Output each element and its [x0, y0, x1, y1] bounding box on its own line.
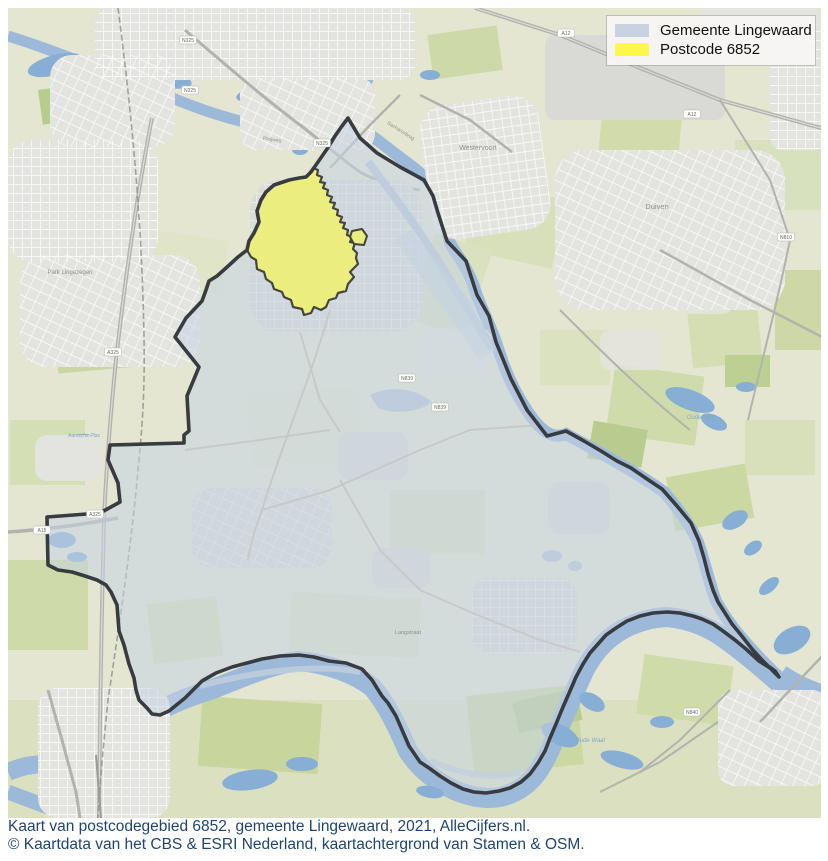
legend-item-postcode: Postcode 6852 [615, 40, 807, 59]
svg-text:N810: N810 [780, 235, 792, 241]
svg-text:Westervoort: Westervoort [459, 145, 497, 152]
svg-text:N839: N839 [434, 405, 446, 411]
svg-text:Aamsche Plas: Aamsche Plas [67, 433, 100, 439]
svg-text:Duiven: Duiven [645, 202, 668, 211]
svg-text:N325: N325 [184, 88, 196, 94]
legend-label-postcode: Postcode 6852 [660, 41, 760, 58]
map-frame: N325 N325 N325 A325 A325 A15 A12 A12 N83… [8, 8, 821, 818]
svg-text:A12: A12 [562, 31, 571, 37]
map-art: N325 N325 N325 A325 A325 A15 A12 A12 N83… [8, 8, 821, 818]
map-caption: Kaart van postcodegebied 6852, gemeente … [8, 818, 820, 854]
svg-text:N839: N839 [401, 376, 413, 382]
svg-text:Oude Rijn: Oude Rijn [687, 415, 714, 421]
svg-text:N325: N325 [182, 38, 194, 44]
svg-text:A12: A12 [688, 112, 697, 118]
legend-swatch-gemeente [615, 24, 649, 37]
legend-item-gemeente: Gemeente Lingewaard [615, 21, 807, 40]
caption-line-2: © Kaartdata van het CBS & ESRI Nederland… [8, 836, 820, 854]
caption-line-1: Kaart van postcodegebied 6852, gemeente … [8, 818, 820, 836]
svg-text:A325: A325 [107, 350, 119, 356]
svg-text:N840: N840 [686, 710, 698, 716]
legend-swatch-postcode [615, 43, 649, 56]
page: N325 N325 N325 A325 A325 A15 A12 A12 N83… [0, 0, 828, 861]
map-legend: Gemeente Lingewaard Postcode 6852 [607, 16, 815, 65]
svg-text:N325: N325 [316, 141, 328, 147]
map-canvas: N325 N325 N325 A325 A325 A15 A12 A12 N83… [8, 8, 821, 818]
svg-text:A15: A15 [38, 528, 47, 534]
svg-text:Oude Waal: Oude Waal [575, 738, 606, 744]
legend-label-gemeente: Gemeente Lingewaard [660, 22, 812, 39]
svg-text:A325: A325 [89, 512, 101, 518]
svg-text:Langstraat: Langstraat [395, 630, 421, 636]
svg-text:Park Lingezegen: Park Lingezegen [47, 270, 92, 276]
